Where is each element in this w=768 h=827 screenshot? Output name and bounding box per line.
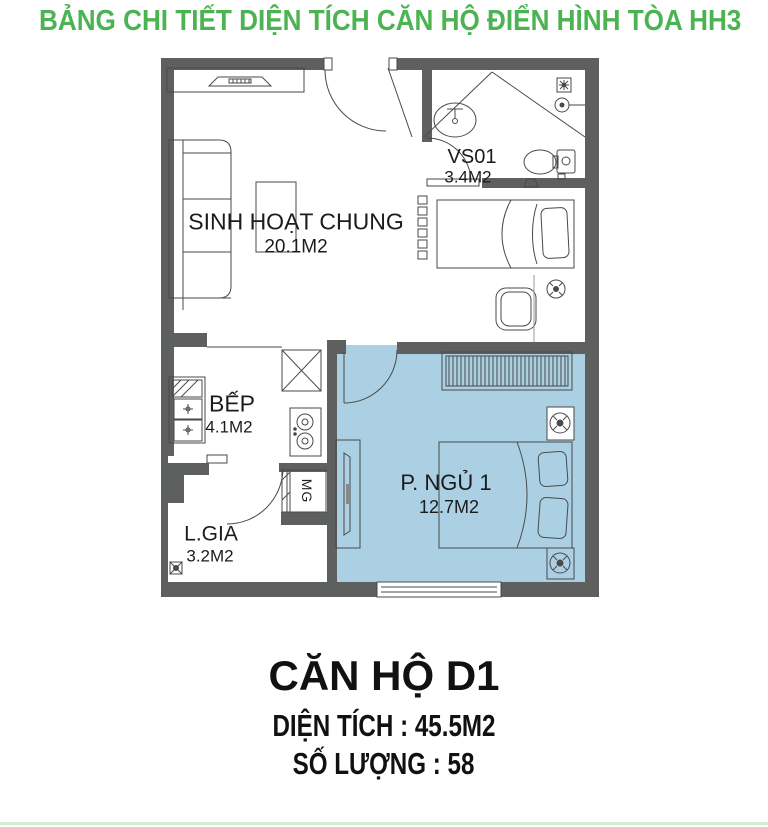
pillow (541, 207, 570, 258)
loggia-area: 3.2M2 (186, 548, 233, 565)
apartment-area-line: DIỆN TÍCH : 45.5M2 (0, 708, 768, 744)
apartment-quantity-line: SỐ LƯỢNG : 58 (0, 746, 768, 782)
second-bed-area (418, 196, 574, 342)
kitchen-label: BẾP (209, 393, 255, 416)
floor-plan: SINH HOẠT CHUNG 20.1M2 VS01 3.4M2 BẾP 4.… (159, 56, 601, 601)
loggia-label: L.GIA (184, 524, 238, 545)
shower-head-icon (555, 98, 585, 112)
stove (290, 408, 321, 456)
bathroom-label: VS01 (448, 147, 497, 167)
fan-box-top (547, 407, 574, 440)
bathroom-area: 3.4M2 (444, 169, 491, 186)
apartment-name: CĂN HỘ D1 (0, 652, 768, 700)
desk-chair (496, 288, 536, 330)
kitchen-area: 4.1M2 (205, 419, 252, 436)
bathroom-sink (434, 103, 476, 137)
wardrobe (442, 352, 572, 390)
shelf-squares (418, 196, 427, 259)
vent-icon (557, 78, 571, 92)
floor-drain-icon (170, 562, 182, 574)
toilet (524, 150, 575, 174)
loggia-door-sill (207, 455, 227, 463)
kitchen-sink (169, 377, 205, 443)
loggia-door-leaf (282, 470, 290, 512)
floor-plan-drawing (159, 56, 601, 601)
shower-screen (424, 72, 492, 137)
window (377, 582, 501, 597)
living-room-furniture (167, 68, 304, 310)
entrance-door-arc (325, 70, 386, 131)
entrance-door-leaf (388, 68, 412, 137)
floor-plan-page: BẢNG CHI TIẾT DIỆN TÍCH CĂN HỘ ĐIỂN HÌNH… (0, 0, 768, 827)
fridge-space (282, 350, 321, 391)
bottom-green-bar (0, 822, 768, 825)
bedroom1-label: P. NGỦ 1 (400, 472, 491, 494)
loggia-door-arc (227, 468, 283, 524)
ceiling-fan-icon (547, 280, 565, 298)
living-room-area: 20.1M2 (264, 238, 327, 257)
washing-machine-label: MG (299, 479, 315, 504)
living-room-label: SINH HOẠT CHUNG (188, 211, 404, 234)
bedroom1-area: 12.7M2 (419, 498, 479, 516)
page-title: BẢNG CHI TIẾT DIỆN TÍCH CĂN HỘ ĐIỂN HÌNH… (0, 5, 768, 38)
